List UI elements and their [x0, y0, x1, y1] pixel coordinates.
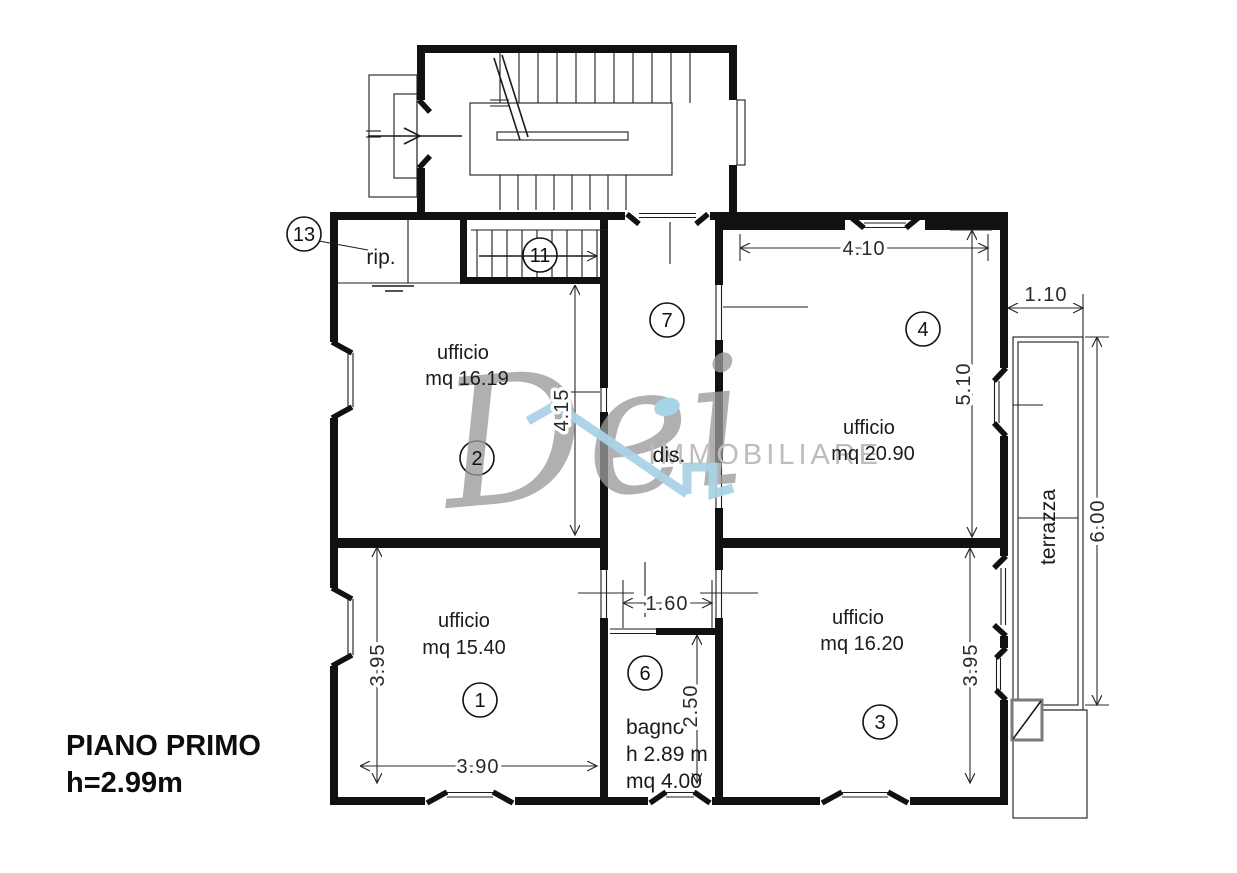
bathroom-area: mq 4.00	[626, 770, 702, 793]
tag-13: 13	[293, 224, 315, 246]
tag-1: 1	[474, 690, 485, 712]
bathroom-height: h 2.89 m	[626, 743, 708, 766]
tag-3: 3	[874, 712, 885, 734]
tag-7: 7	[661, 310, 672, 332]
room3-name: ufficio	[832, 607, 884, 629]
terrace-name: terrazza	[1037, 489, 1060, 565]
bathroom-name: bagno	[626, 716, 684, 739]
tag-11: 11	[530, 245, 551, 267]
dim-bath-width: 1.60	[646, 593, 689, 615]
room4-name: ufficio	[843, 417, 895, 439]
tag-2: 2	[471, 448, 482, 470]
dim-room2-depth: 4.15	[551, 389, 573, 432]
dim-bath-depth: 2.50	[680, 685, 702, 728]
room1-name: ufficio	[438, 610, 490, 632]
hallway-name: dis.	[653, 444, 686, 467]
dim-room3-depth: 3.95	[960, 644, 982, 687]
watermark: Dei IMMOBILIARE	[431, 317, 883, 550]
room2-name: ufficio	[437, 342, 489, 364]
tag-4: 4	[917, 319, 928, 341]
dim-terrace-length: 6.00	[1087, 500, 1109, 543]
plan-height: h=2.99m	[66, 767, 183, 799]
plan-title: PIANO PRIMO	[66, 730, 261, 762]
room3-area: mq 16.20	[820, 633, 903, 655]
dim-terrace-width: 1.10	[1025, 284, 1068, 306]
room4-area: mq 20.90	[831, 443, 914, 465]
dim-room4-width: 4.10	[843, 238, 886, 260]
tag-6: 6	[639, 663, 650, 685]
room2-area: mq 16.19	[425, 368, 508, 390]
dim-room4-depth: 5.10	[953, 363, 975, 406]
dim-room1-depth: 3.95	[367, 644, 389, 687]
closet-name: rip.	[366, 246, 395, 269]
room1-area: mq 15.40	[422, 637, 505, 659]
floor-plan-drawing: Dei IMMOBILIARE ufficio mq 16.19 ufficio…	[0, 0, 1237, 873]
floor-plan-page: Dei IMMOBILIARE ufficio mq 16.19 ufficio…	[0, 0, 1237, 873]
dim-room1-width: 3.90	[457, 756, 500, 778]
